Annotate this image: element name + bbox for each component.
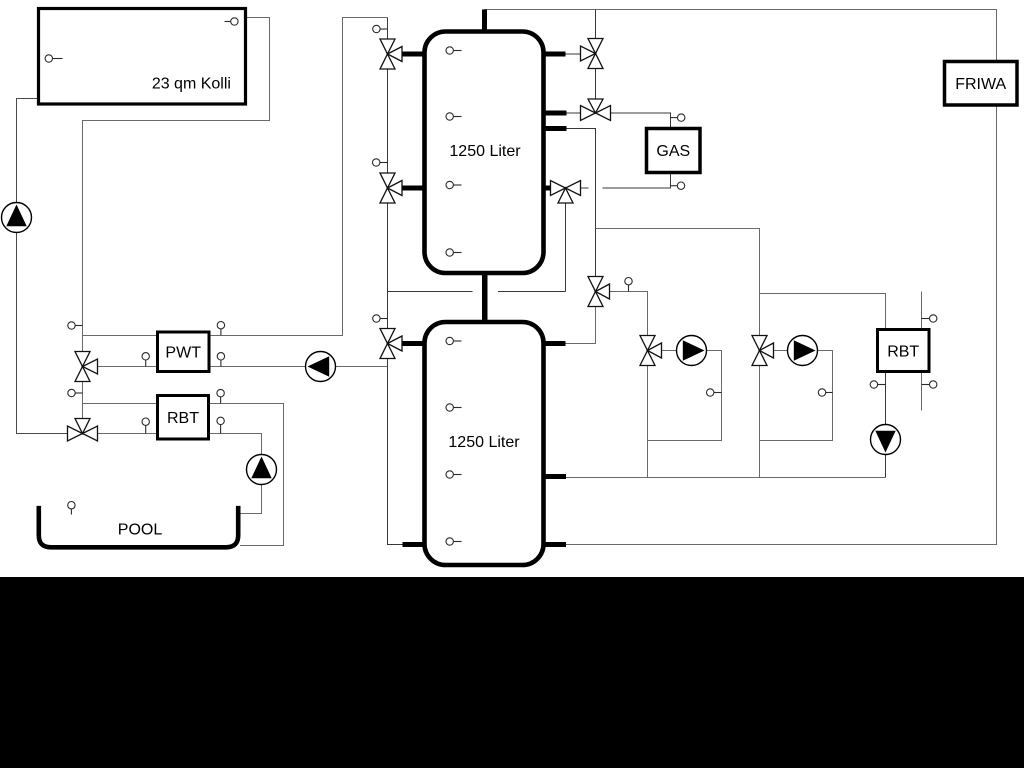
svg-text:FRIWA: FRIWA	[955, 76, 1006, 93]
svg-text:1250 Liter: 1250 Liter	[448, 434, 520, 451]
svg-text:POOL: POOL	[118, 522, 163, 539]
svg-text:23 qm Kolli: 23 qm Kolli	[152, 76, 231, 93]
svg-text:1250 Liter: 1250 Liter	[449, 143, 521, 160]
svg-text:GAS: GAS	[656, 143, 690, 160]
svg-text:PWT: PWT	[165, 344, 201, 361]
svg-text:RBT: RBT	[167, 410, 199, 427]
svg-text:RBT: RBT	[887, 344, 919, 361]
